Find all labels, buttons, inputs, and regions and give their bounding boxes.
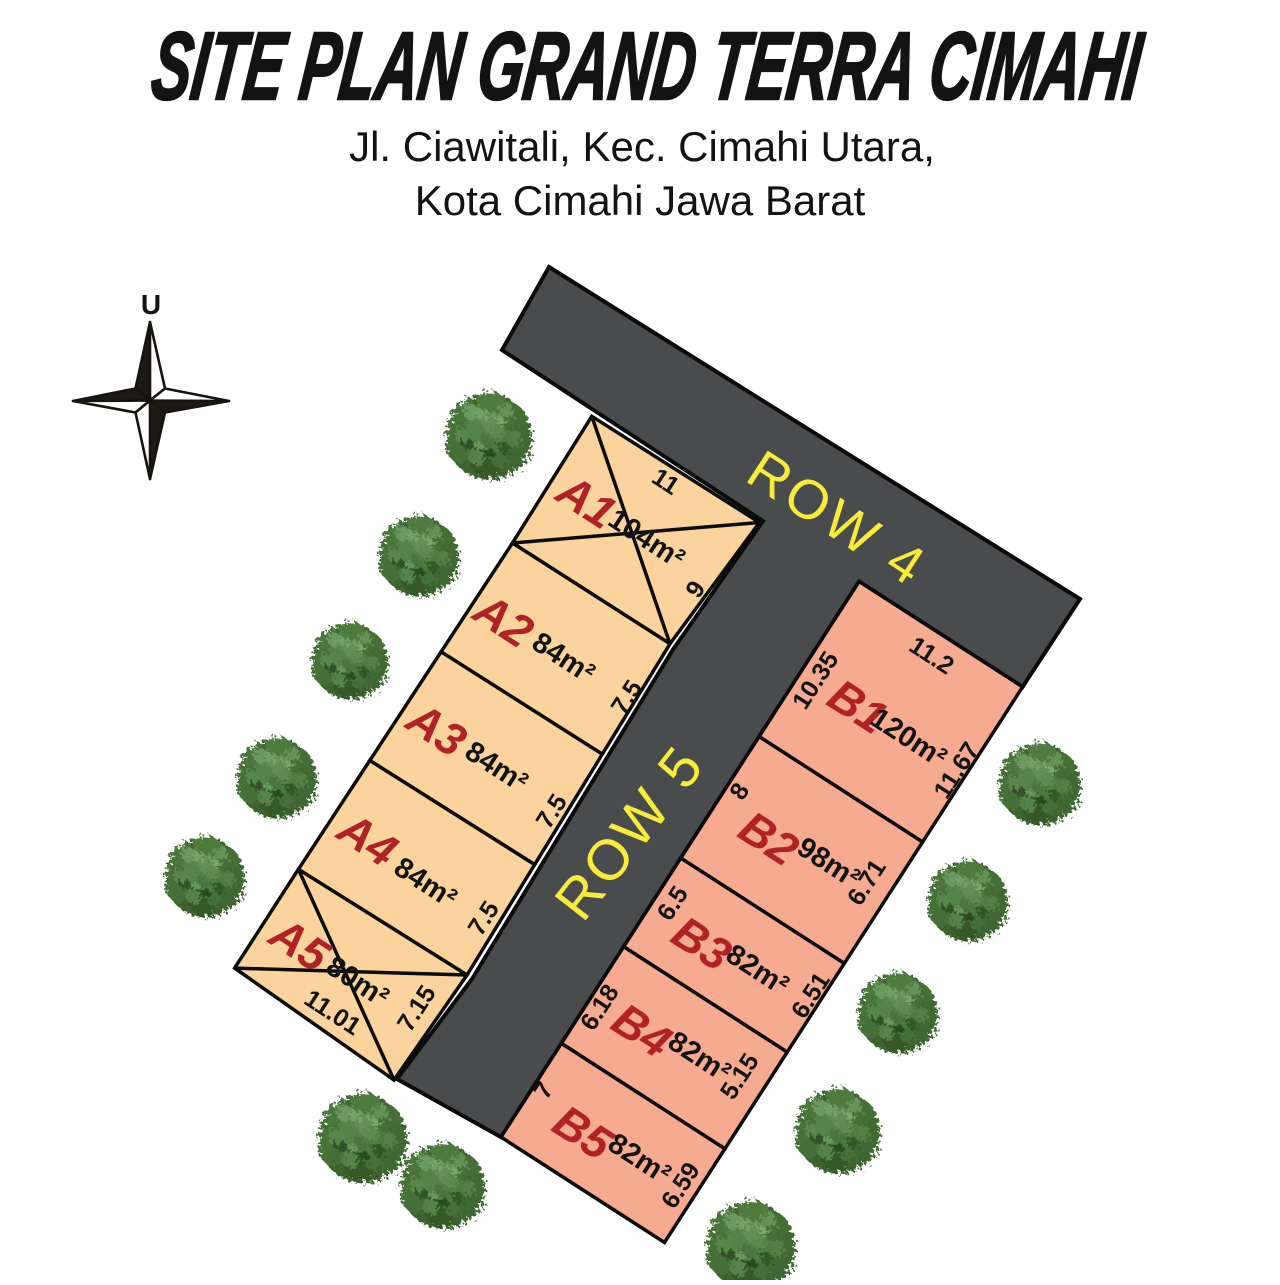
svg-text:Kota Cimahi Jawa Barat: Kota Cimahi Jawa Barat xyxy=(415,177,866,224)
svg-text:SITE PLAN GRAND TERRA CIMAHI: SITE PLAN GRAND TERRA CIMAHI xyxy=(146,13,1148,120)
svg-text:Jl. Ciawitali, Kec. Cimahi Uta: Jl. Ciawitali, Kec. Cimahi Utara, xyxy=(349,123,935,170)
svg-text:U: U xyxy=(141,289,161,320)
